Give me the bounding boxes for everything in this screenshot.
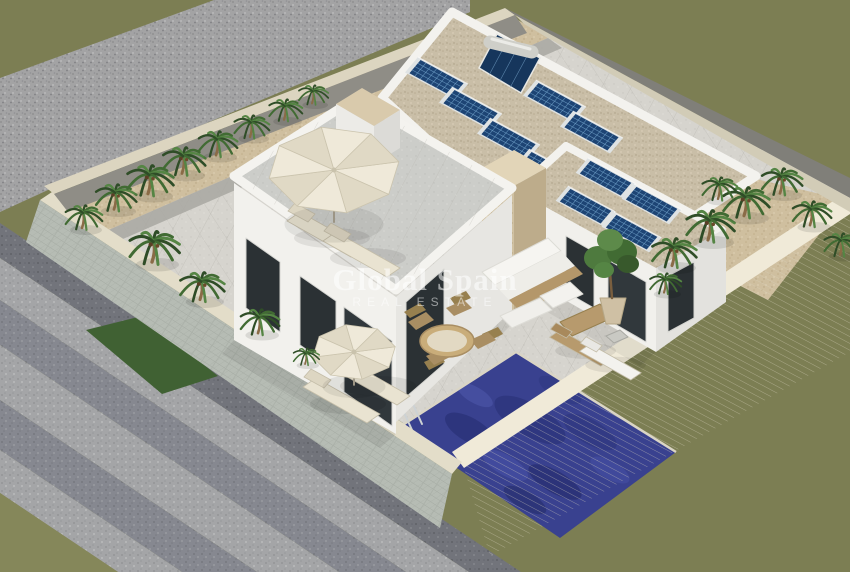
tree-foliage-3 <box>597 229 623 251</box>
palm-coconut <box>145 176 149 180</box>
palm-coconut <box>111 193 115 197</box>
palm-coconut <box>783 179 786 182</box>
palm-coconut <box>777 177 781 181</box>
palm-coconut <box>179 157 183 161</box>
dining-table-glass <box>427 330 467 352</box>
palm-coconut <box>148 242 152 246</box>
palm-coconut <box>117 195 120 198</box>
palm-coconut <box>151 177 155 181</box>
palm-coconut <box>197 282 201 286</box>
palm-coconut <box>185 158 188 161</box>
scene-root <box>0 0 850 572</box>
tree-foliage-5 <box>594 262 614 278</box>
terrace-parasol <box>269 127 399 242</box>
property-render: Global Spain REAL ESTATE <box>0 0 850 572</box>
palm-coconut <box>705 221 709 225</box>
palm-coconut <box>747 199 751 203</box>
parasol-hub <box>352 350 357 355</box>
palm-coconut <box>156 244 160 248</box>
pool-parasol <box>313 325 395 398</box>
palm-coconut <box>711 222 715 226</box>
palm-coconut <box>741 198 745 202</box>
parasol-hub <box>332 168 337 173</box>
palm-coconut <box>669 248 673 252</box>
tree-foliage-4 <box>617 255 639 273</box>
scene-canvas <box>0 0 850 572</box>
palm-coconut <box>203 284 206 287</box>
palm-coconut <box>675 250 678 253</box>
